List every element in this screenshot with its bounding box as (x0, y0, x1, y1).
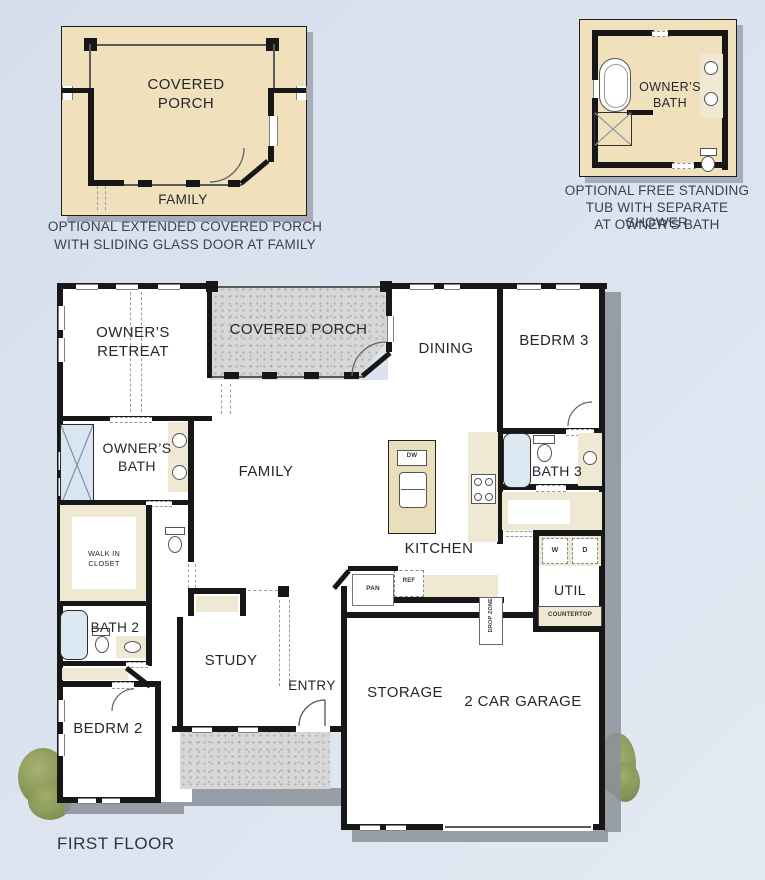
window (238, 727, 258, 733)
window (444, 284, 460, 290)
burner (474, 478, 482, 486)
wall-segment (146, 601, 152, 665)
cased-opening-dashes (248, 590, 278, 593)
door-arc (350, 340, 388, 378)
room-label-bedrm2: BEDRM 2 (66, 719, 150, 738)
window (116, 284, 138, 290)
wall-segment (503, 612, 535, 618)
wall-segment (268, 88, 274, 116)
wall-segment (268, 146, 274, 162)
wall-segment (155, 687, 161, 803)
wall-segment (592, 30, 654, 36)
door-arc (110, 687, 136, 713)
window (58, 306, 65, 330)
inset-porch-family-label: FAMILY (142, 191, 224, 208)
porch-post (304, 372, 319, 379)
door-opening (536, 485, 566, 492)
wall-segment (592, 30, 598, 80)
post-dashes (221, 384, 231, 414)
inset-porch-caption-line2: WITH SLIDING GLASS DOOR AT FAMILY (40, 237, 330, 252)
wall-segment (62, 88, 90, 93)
wall-segment (592, 162, 674, 168)
wall-segment (348, 566, 398, 571)
front-door-arc (297, 698, 327, 728)
window (102, 798, 120, 804)
room-label-util: UTIL (542, 582, 598, 600)
cased-opening-dashes (279, 600, 290, 686)
window (76, 284, 98, 290)
wall-segment (240, 588, 246, 616)
toilet-tank (165, 527, 185, 535)
kitchen-sink (399, 472, 427, 508)
wall-segment (403, 612, 481, 618)
wall-segment (341, 600, 347, 828)
shower (60, 424, 94, 506)
room-label-dining: DINING (406, 339, 486, 358)
wall-segment (88, 180, 124, 186)
drop-shadow (184, 788, 346, 806)
entry-porch-floor (180, 732, 330, 789)
porch-post (84, 38, 97, 51)
room-label-storage: STORAGE (364, 683, 446, 702)
wall-segment (188, 588, 246, 594)
room-label-entry: ENTRY (283, 677, 341, 694)
wall-segment (386, 286, 392, 316)
fixture-label-dryer: D (572, 547, 598, 555)
window (517, 284, 541, 290)
window (58, 338, 65, 362)
window (386, 825, 406, 831)
sliding-door-dashes (97, 186, 106, 210)
bedroom-closet (62, 668, 128, 680)
door-arc (566, 400, 594, 428)
wall-segment (177, 617, 183, 732)
burner (485, 478, 493, 486)
door-opening (506, 531, 532, 537)
fixture-label-ref: REF (394, 578, 424, 585)
toilet-bowl (537, 444, 552, 462)
drop-shadow (604, 292, 621, 832)
porch-outline-line (90, 44, 274, 46)
room-label-owners-bath: OWNER’S BATH (90, 440, 184, 476)
sink (124, 641, 141, 653)
window (158, 284, 180, 290)
wall-segment (188, 588, 194, 616)
burner (485, 493, 493, 501)
floor-garage (341, 600, 604, 828)
fixture-label-drop-zone: DROP ZONE (488, 592, 494, 638)
room-label-owners-retreat: OWNER’S RETREAT (73, 323, 193, 361)
room-label-garage: 2 CAR GARAGE (461, 692, 585, 711)
window (58, 700, 65, 722)
inset-porch-room-label: COVERED PORCH (124, 75, 248, 113)
sink-divider (401, 489, 425, 490)
toilet-tank (700, 148, 717, 156)
window (78, 798, 96, 804)
wall-segment (270, 88, 306, 93)
fixture-label-washer: W (542, 547, 568, 555)
toilet-bowl (701, 156, 715, 172)
hall-floor (508, 500, 570, 524)
window (410, 284, 434, 290)
room-label-covered-porch: COVERED PORCH (226, 320, 371, 339)
room-label-bedrm3: BEDRM 3 (508, 331, 600, 350)
wall-segment (668, 30, 728, 36)
inset-bath-caption-line1: OPTIONAL FREE STANDING (557, 183, 757, 198)
porch-post (262, 372, 277, 379)
room-label-kitchen: KITCHEN (397, 539, 481, 558)
room-label-bath3: BATH 3 (522, 463, 592, 481)
porch-post (186, 180, 200, 187)
window (387, 316, 394, 342)
wall-segment (146, 505, 152, 603)
porch-post (224, 372, 239, 379)
burner (474, 493, 482, 501)
door-dashes (188, 564, 196, 588)
porch-outline-line (89, 44, 91, 90)
room-label-walk-in-closet: WALK IN CLOSET (80, 549, 128, 568)
wall-segment (88, 88, 94, 184)
fixture-label-countertop: COUNTERTOP (538, 612, 602, 619)
sink (704, 61, 718, 75)
bathtub-inner (604, 64, 628, 108)
inset-porch-caption-line1: OPTIONAL EXTENDED COVERED PORCH (40, 219, 330, 234)
window (556, 284, 580, 290)
shower (594, 112, 632, 146)
toilet-bowl (95, 636, 109, 653)
fixture-label-dw: DW (397, 453, 427, 460)
porch-post (138, 180, 152, 187)
study-shelf (196, 596, 238, 612)
wall-segment (188, 420, 194, 562)
door-arc (208, 146, 246, 184)
wall-segment (57, 601, 152, 606)
wall-segment (207, 286, 212, 378)
wall-segment (533, 626, 605, 632)
window (192, 727, 212, 733)
first-floor-title: FIRST FLOOR (57, 833, 197, 855)
wall-segment (341, 612, 403, 618)
wall-post (278, 586, 289, 597)
room-label-study: STUDY (196, 651, 266, 670)
porch-edge-line (212, 286, 390, 288)
door-opening (110, 417, 152, 423)
window (360, 825, 380, 831)
garage-door-line (445, 826, 591, 828)
door-opening (672, 163, 696, 169)
toilet-tank (533, 435, 555, 444)
porch-outline-line (273, 44, 275, 90)
inset-bath-caption-line3: AT OWNER’S BATH (557, 217, 757, 232)
fixture-label-pan: PAN (352, 585, 394, 592)
window (58, 734, 65, 756)
toilet-bowl (168, 536, 182, 553)
window (269, 116, 278, 146)
inset-bath-room-label: OWNER’S BATH (629, 79, 711, 111)
room-label-bath2: BATH 2 (84, 619, 146, 636)
room-label-family: FAMILY (226, 462, 306, 481)
